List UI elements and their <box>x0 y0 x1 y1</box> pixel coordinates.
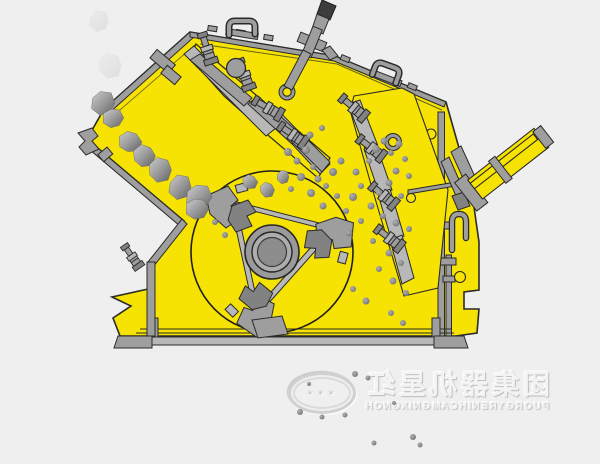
impact-crusher-diagram: ✶✶✶ 红星机器集团 HONGXING MACHINERY GROUP <box>0 0 600 464</box>
debris-dot <box>410 434 416 440</box>
debris-dot <box>392 401 396 405</box>
particle <box>380 213 386 219</box>
particle <box>402 156 408 162</box>
ghost-rock <box>99 53 121 78</box>
particle <box>406 226 412 232</box>
particle <box>381 138 388 145</box>
particle <box>212 219 218 225</box>
left-wall-bar <box>147 262 155 336</box>
debris-dot <box>307 382 311 386</box>
particle <box>366 158 372 164</box>
rear-tab <box>443 276 455 282</box>
particle <box>406 173 412 179</box>
base-foot-right <box>434 336 468 348</box>
feed-arm-bolt <box>119 242 145 272</box>
rear-angle-bar-2 <box>446 255 452 338</box>
curtain1-pivot-large <box>227 59 246 78</box>
base-rail <box>128 337 458 345</box>
particle <box>393 168 400 175</box>
debris-dot <box>372 441 377 446</box>
particle <box>358 218 364 224</box>
rotor-shaft <box>258 238 287 267</box>
particle <box>388 150 394 156</box>
particle <box>297 173 305 181</box>
debris-dot <box>343 413 348 418</box>
particle <box>319 125 325 131</box>
particle <box>222 232 228 238</box>
particle <box>334 193 340 199</box>
particle <box>398 260 404 266</box>
particle <box>310 164 316 170</box>
particle <box>338 158 345 165</box>
roof-tab <box>264 34 274 40</box>
particle <box>388 310 394 316</box>
particle <box>400 320 406 326</box>
particle <box>302 146 310 154</box>
particle <box>386 250 393 257</box>
particle <box>376 266 382 272</box>
particle <box>284 148 292 156</box>
discharge-guide <box>252 316 288 338</box>
roof-tab <box>208 25 218 31</box>
ghost-rocks <box>90 11 122 79</box>
particle <box>390 278 397 285</box>
particle <box>353 169 360 176</box>
particle <box>294 158 301 165</box>
particle <box>393 220 400 227</box>
rear-hole <box>455 272 466 283</box>
debris-dot <box>352 371 358 377</box>
particle <box>372 145 380 153</box>
particle <box>368 203 375 210</box>
particle <box>386 180 393 187</box>
particle <box>346 230 353 237</box>
particle <box>363 298 370 305</box>
particle <box>329 168 337 176</box>
particle <box>307 132 314 139</box>
particle <box>323 183 329 189</box>
particle <box>349 193 357 201</box>
particle <box>376 190 382 196</box>
debris-dot <box>418 443 423 448</box>
base-post-right <box>432 318 440 337</box>
particle <box>343 208 349 214</box>
crusher-cross-section <box>0 0 600 464</box>
particle <box>350 286 356 292</box>
particle <box>370 238 376 244</box>
particle <box>358 183 364 189</box>
debris-dot <box>366 376 371 381</box>
debris-dot <box>320 415 325 420</box>
curtain2-hole <box>407 194 416 203</box>
particle <box>403 290 409 296</box>
particle <box>398 193 404 199</box>
ghost-rock <box>90 11 109 32</box>
stray-debris-dots <box>297 371 423 448</box>
base-foot-left <box>114 336 152 348</box>
debris-dot <box>297 409 303 415</box>
particle <box>315 176 322 183</box>
particle <box>288 186 294 192</box>
particle <box>307 189 315 197</box>
particle <box>320 203 327 210</box>
particle <box>396 141 403 148</box>
